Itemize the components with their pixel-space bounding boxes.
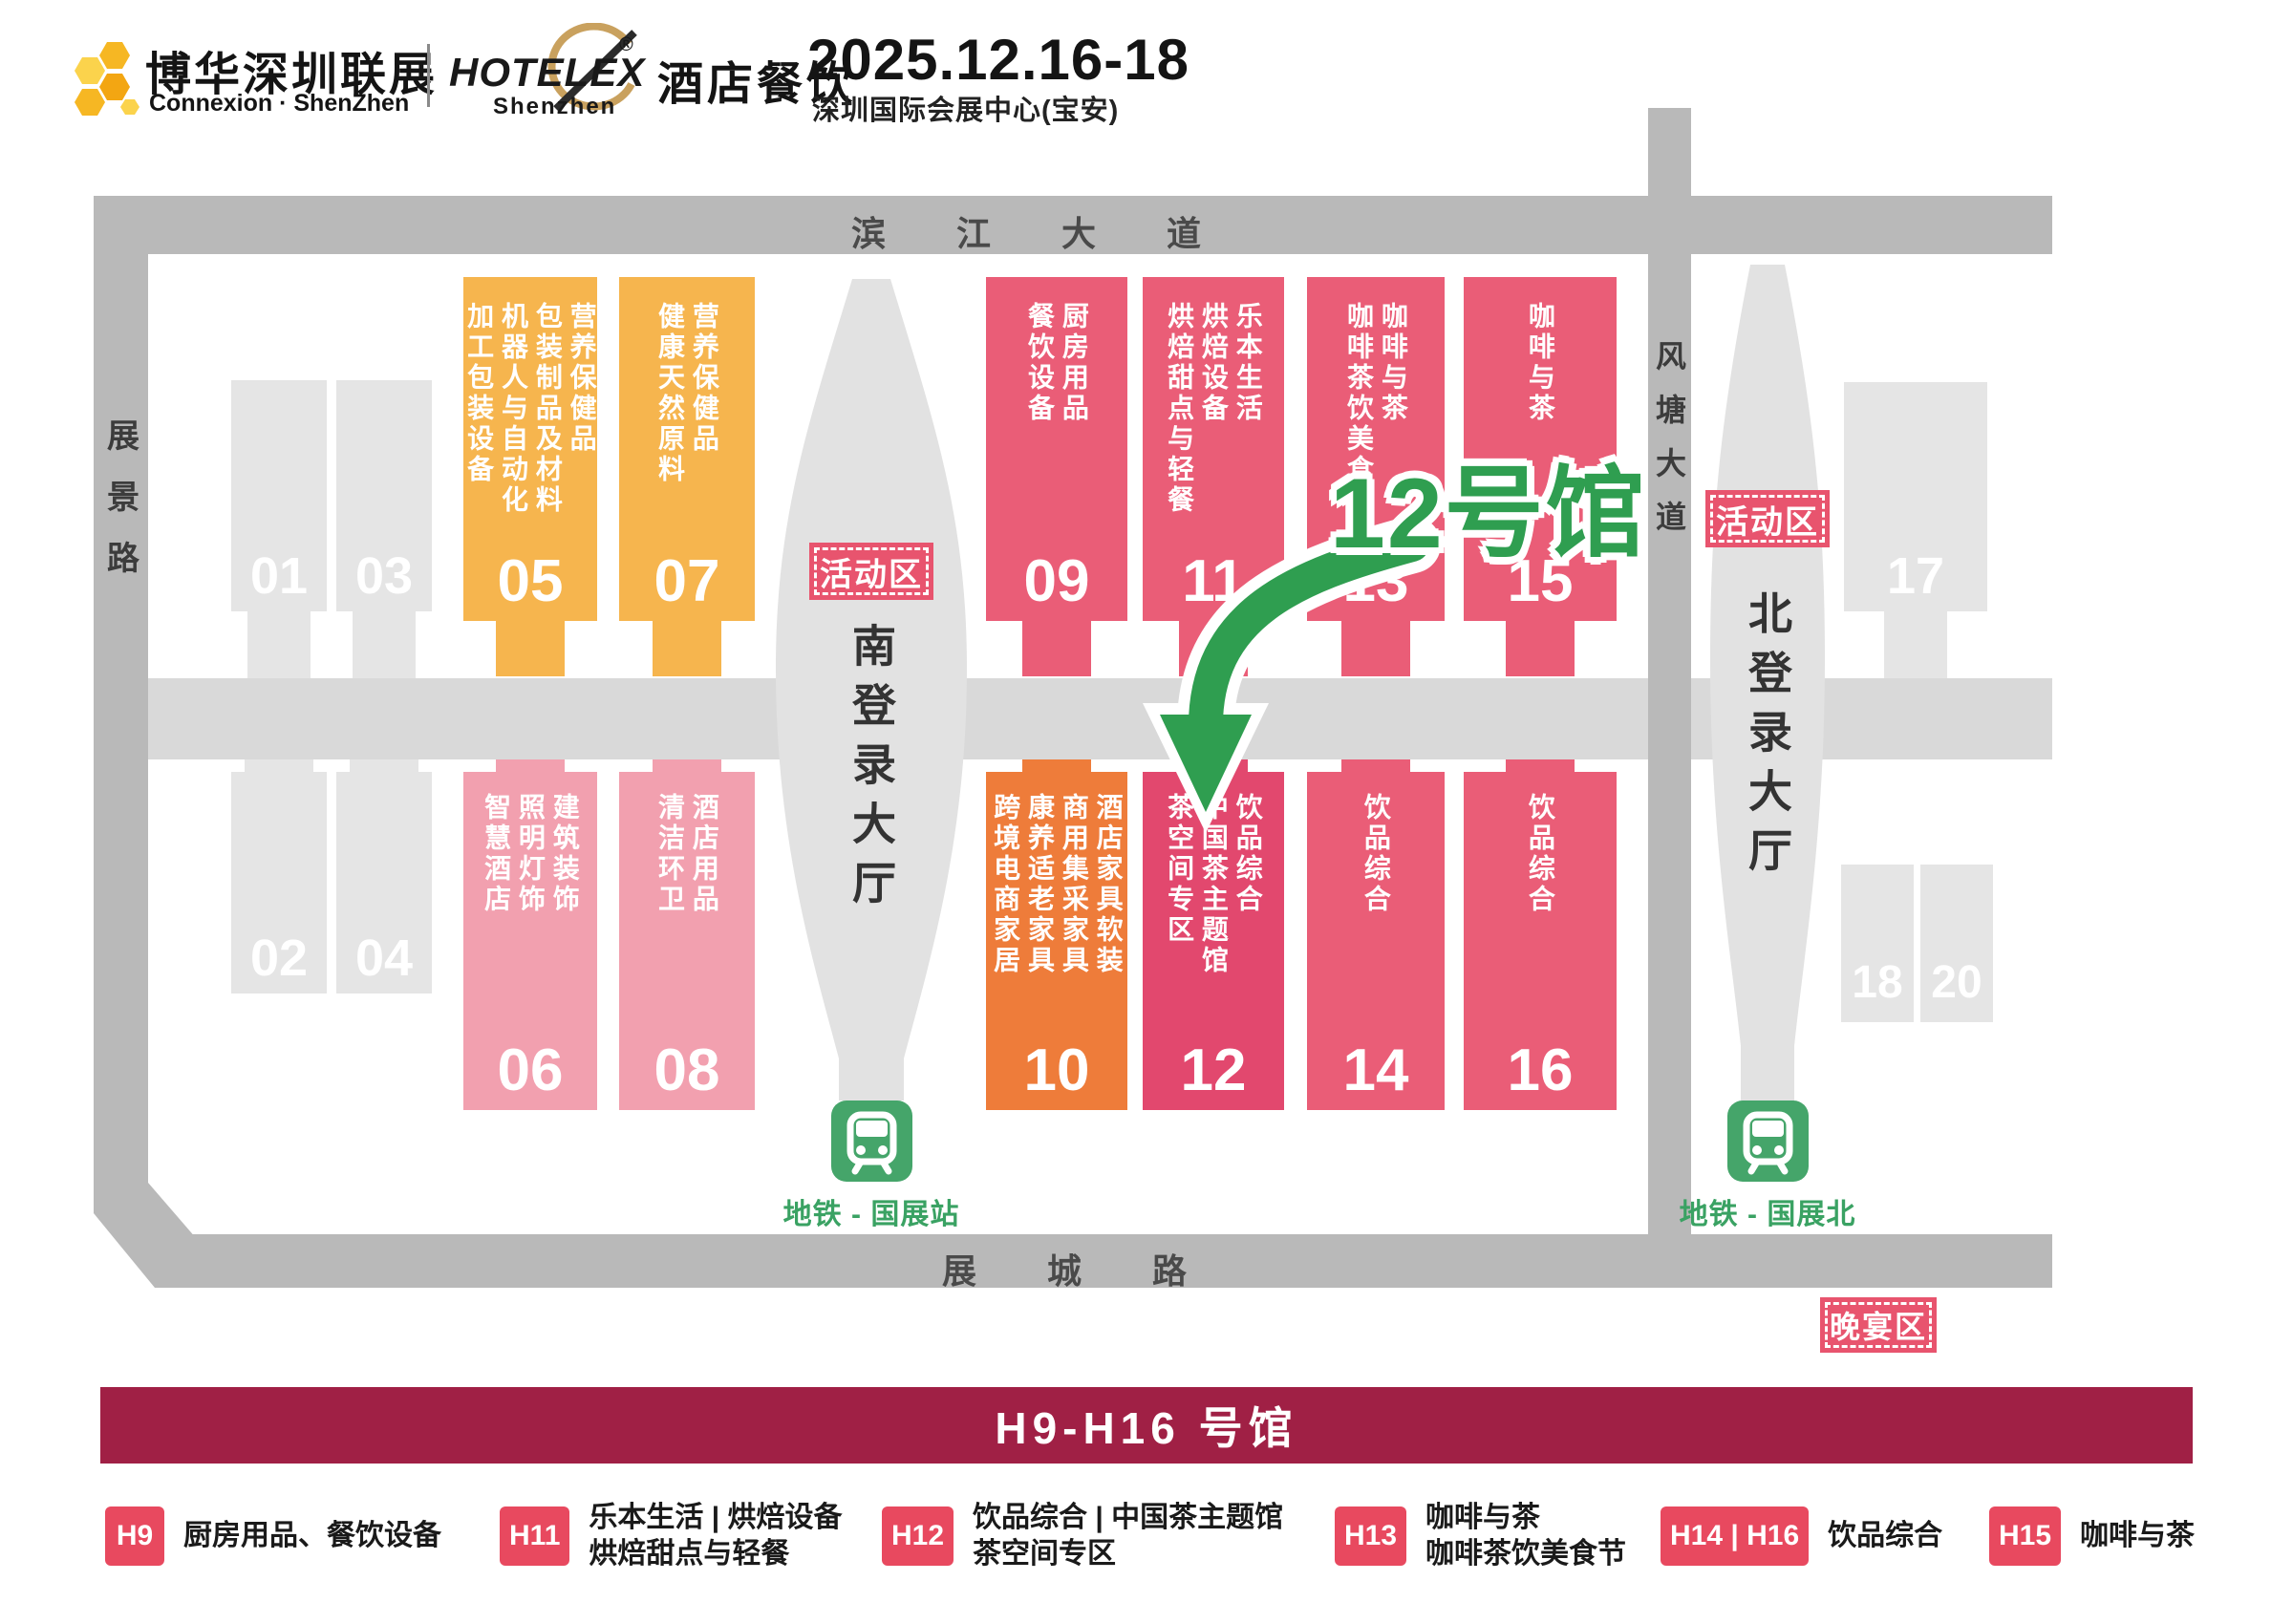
hall-12-pointer-arrow	[0, 0, 2293, 1624]
hall-12-callout: 12号馆	[1330, 432, 1647, 576]
floorplan-poster: 博华深圳联展 Connexion · ShenZhen HOTELEX ® Sh…	[0, 0, 2293, 1624]
